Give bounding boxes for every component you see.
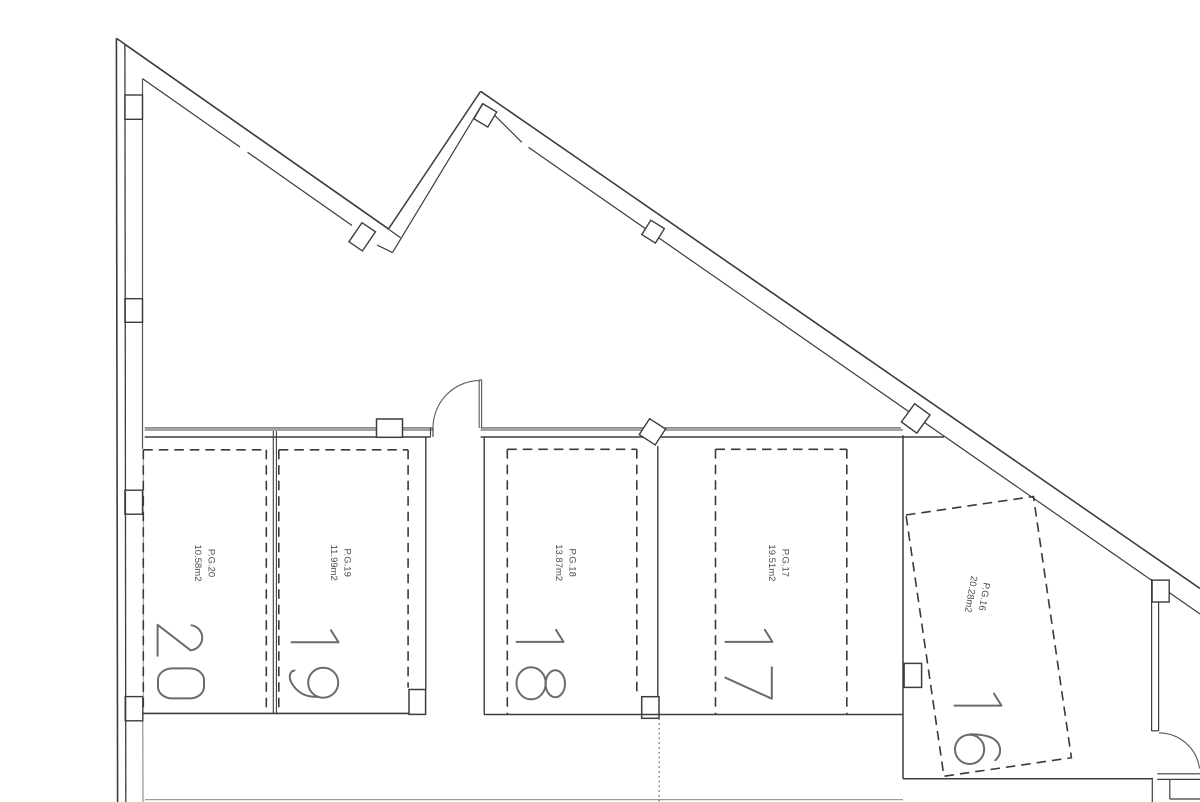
svg-text:P.G.19: P.G.19	[341, 549, 352, 577]
svg-text:P.G.20: P.G.20	[206, 549, 217, 577]
svg-text:10.58m2: 10.58m2	[192, 545, 203, 582]
svg-text:P.G.18: P.G.18	[566, 549, 577, 577]
svg-text:P.G.17: P.G.17	[779, 549, 790, 577]
svg-text:13.87m2: 13.87m2	[553, 544, 564, 581]
svg-text:19.51m2: 19.51m2	[766, 544, 777, 581]
svg-text:11.99m2: 11.99m2	[328, 545, 339, 581]
